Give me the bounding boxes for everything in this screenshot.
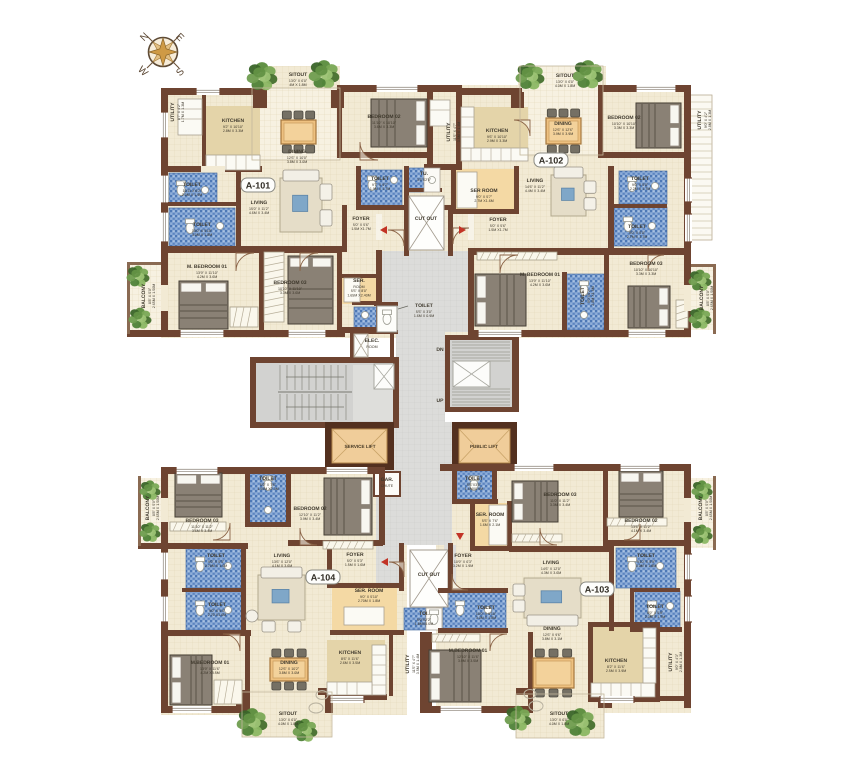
svg-text:11'10" X 10'10": 11'10" X 10'10" xyxy=(372,121,397,125)
svg-text:10'0" X 5'10": 10'0" X 5'10" xyxy=(476,612,497,616)
svg-text:UTILITY: UTILITY xyxy=(697,110,703,130)
svg-text:2.8M X 1.3M: 2.8M X 1.3M xyxy=(679,652,683,672)
svg-text:DINING: DINING xyxy=(280,660,298,666)
svg-text:3.5M X 1.4M: 3.5M X 1.4M xyxy=(416,654,420,674)
svg-text:SER.: SER. xyxy=(353,278,365,284)
svg-text:9'6" X 10'10": 9'6" X 10'10" xyxy=(487,135,508,139)
svg-text:1.5M X1.7M: 1.5M X1.7M xyxy=(351,227,370,231)
svg-text:13'6" X 11'2": 13'6" X 11'2" xyxy=(631,525,652,529)
svg-text:8'8" X 5'0": 8'8" X 5'0" xyxy=(148,287,152,304)
svg-text:9'0" X 5'7": 9'0" X 5'7" xyxy=(476,195,493,199)
svg-text:12'6" X 9'6": 12'6" X 9'6" xyxy=(543,633,562,637)
svg-text:4.1M X 3.4M: 4.1M X 3.4M xyxy=(631,529,651,533)
svg-text:1.9M X 1.7M: 1.9M X 1.7M xyxy=(370,187,390,191)
svg-text:M. BEDROOM 01: M. BEDROOM 01 xyxy=(187,264,227,270)
svg-text:TOILET: TOILET xyxy=(631,176,649,182)
svg-text:4.4M X 3.4M: 4.4M X 3.4M xyxy=(525,189,545,193)
svg-text:2.6M X 3.5M: 2.6M X 3.5M xyxy=(340,661,360,665)
svg-text:12'6" X 12'6": 12'6" X 12'6" xyxy=(553,128,574,132)
svg-text:BEDROOM 03: BEDROOM 03 xyxy=(543,492,576,498)
svg-text:8'8" X 5'0": 8'8" X 5'0" xyxy=(152,499,156,516)
svg-text:SER. ROOM: SER. ROOM xyxy=(476,512,505,518)
svg-text:13'9" X 11'10": 13'9" X 11'10" xyxy=(529,279,552,283)
svg-text:9'10" X 5'9": 9'10" X 5'9" xyxy=(637,560,656,564)
svg-text:1.65M X2.40M: 1.65M X2.40M xyxy=(347,294,370,298)
svg-text:1.7M X 1.3M: 1.7M X 1.3M xyxy=(181,102,185,122)
svg-text:9'0" X 5'6": 9'0" X 5'6" xyxy=(209,609,226,613)
svg-text:11'0" X 11'2": 11'0" X 11'2" xyxy=(550,499,570,503)
svg-text:2.5M X 3.9M: 2.5M X 3.9M xyxy=(606,669,626,673)
svg-text:KITCHEN: KITCHEN xyxy=(605,658,628,664)
svg-text:8'2" X 11'6": 8'2" X 11'6" xyxy=(607,665,626,669)
svg-text:TOILET: TOILET xyxy=(193,222,211,228)
svg-text:9'0" X 5'0": 9'0" X 5'0" xyxy=(632,183,649,187)
svg-text:TOILET: TOILET xyxy=(207,553,225,559)
svg-text:3.3M X 3.3M: 3.3M X 3.3M xyxy=(614,126,634,130)
svg-text:3.2M X 1.9M: 3.2M X 1.9M xyxy=(453,564,473,568)
svg-text:1.55M X2.3M: 1.55M X2.3M xyxy=(257,487,278,491)
svg-text:KITCHEN: KITCHEN xyxy=(339,650,362,656)
svg-text:3'3"X2'0": 3'3"X2'0" xyxy=(417,178,432,182)
svg-text:4.0M X 1.8M: 4.0M X 1.8M xyxy=(549,722,569,726)
svg-text:9'0"X5'2": 9'0"X5'2" xyxy=(587,288,591,303)
svg-text:TOILET: TOILET xyxy=(628,224,646,230)
svg-text:BEDROOM 03: BEDROOM 03 xyxy=(273,280,306,286)
svg-text:4.2M X3.5M: 4.2M X3.5M xyxy=(200,671,219,675)
svg-text:M.BEDROOM 01: M.BEDROOM 01 xyxy=(449,648,488,654)
svg-text:12'6" X 10'0": 12'6" X 10'0" xyxy=(287,156,308,160)
svg-text:2.8M X 1.3M: 2.8M X 1.3M xyxy=(708,110,712,130)
svg-text:3.3M X 3.4M: 3.3M X 3.4M xyxy=(550,503,570,507)
svg-text:SITOUT: SITOUT xyxy=(289,72,307,78)
svg-text:SITOUT: SITOUT xyxy=(279,711,297,717)
svg-text:ELEC.: ELEC. xyxy=(365,338,380,344)
svg-text:UP: UP xyxy=(437,398,445,404)
svg-text:SER ROOM: SER ROOM xyxy=(470,188,497,194)
svg-text:5'5" X 7'6": 5'5" X 7'6" xyxy=(482,519,499,523)
svg-text:10'9" X 6'3": 10'9" X 6'3" xyxy=(454,560,473,564)
svg-text:UTILITY: UTILITY xyxy=(446,122,452,142)
svg-text:DINING: DINING xyxy=(554,121,572,127)
svg-text:8'8" X 5'0": 8'8" X 5'0" xyxy=(706,289,710,306)
svg-text:5'0" X 5'6": 5'0" X 5'6" xyxy=(353,223,370,227)
svg-text:9'7" X 9'7": 9'7" X 9'7" xyxy=(372,183,389,187)
svg-text:1.5M X 1.6M: 1.5M X 1.6M xyxy=(345,563,365,567)
svg-text:4.0M X 1.8M: 4.0M X 1.8M xyxy=(278,722,298,726)
svg-text:3.0M X 1.8M: 3.0M X 1.8M xyxy=(636,564,656,568)
svg-text:5'0" X 5'6": 5'0" X 5'6" xyxy=(490,224,507,228)
svg-text:13'0" X 6'0": 13'0" X 6'0" xyxy=(556,80,575,84)
svg-text:LIVING: LIVING xyxy=(251,200,268,206)
svg-text:13'9" X 11'6": 13'9" X 11'6" xyxy=(200,667,221,671)
svg-text:2.7M X1.6M: 2.7M X1.6M xyxy=(474,199,493,203)
svg-text:GAR.: GAR. xyxy=(381,477,394,483)
svg-text:TOILET: TOILET xyxy=(477,605,495,611)
svg-text:2.65M X 1.50M: 2.65M X 1.50M xyxy=(710,286,714,310)
svg-text:A-102: A-102 xyxy=(539,156,564,166)
svg-text:BALCONY: BALCONY xyxy=(698,495,704,520)
svg-text:1.5M X1.7M: 1.5M X1.7M xyxy=(488,228,507,232)
svg-text:BEDROOM 02: BEDROOM 02 xyxy=(607,115,640,121)
svg-text:8'8" X 5'0": 8'8" X 5'0" xyxy=(705,499,709,516)
svg-text:3.8M X 3.0M: 3.8M X 3.0M xyxy=(279,671,299,675)
svg-text:4.2M X 3.6M: 4.2M X 3.6M xyxy=(530,283,550,287)
svg-text:FOYER: FOYER xyxy=(352,216,370,222)
svg-text:2.9M X 3.3M: 2.9M X 3.3M xyxy=(487,139,507,143)
svg-text:13'0" X 6'0": 13'0" X 6'0" xyxy=(550,718,569,722)
svg-text:5'5" X 3'0": 5'5" X 3'0" xyxy=(416,310,433,314)
svg-text:KITCHEN: KITCHEN xyxy=(222,118,245,124)
svg-text:M.BEDROOM 01: M.BEDROOM 01 xyxy=(191,660,230,666)
svg-text:8'7" X 4'2": 8'7" X 4'2" xyxy=(177,103,181,120)
svg-text:2.7M X 1.7M: 2.7M X 1.7M xyxy=(627,235,647,239)
svg-text:TOILET: TOILET xyxy=(580,287,586,305)
svg-text:14'6" X 11'2": 14'6" X 11'2" xyxy=(525,185,546,189)
svg-text:TOILET: TOILET xyxy=(208,602,226,608)
svg-text:3.9M X 3.5M: 3.9M X 3.5M xyxy=(458,659,478,663)
svg-text:UTILITY: UTILITY xyxy=(668,652,674,672)
svg-text:4.3M X 3.6M: 4.3M X 3.6M xyxy=(541,571,561,575)
svg-text:10'10" X 10'10": 10'10" X 10'10" xyxy=(634,268,659,272)
svg-text:9'0" X 4'2": 9'0" X 4'2" xyxy=(704,111,708,128)
svg-text:DINING: DINING xyxy=(543,626,561,632)
svg-text:BALCONY: BALCONY xyxy=(141,283,147,308)
svg-text:A-104: A-104 xyxy=(311,573,336,583)
svg-text:FOYER: FOYER xyxy=(489,217,507,223)
svg-text:2.65M X 1.50M: 2.65M X 1.50M xyxy=(709,496,713,520)
svg-text:M. BEDROOM 01: M. BEDROOM 01 xyxy=(520,272,560,278)
svg-text:SITOUT: SITOUT xyxy=(556,73,574,79)
svg-text:2.65M X 1.50M: 2.65M X 1.50M xyxy=(156,496,160,520)
svg-text:2.70M X 1.8M: 2.70M X 1.8M xyxy=(358,599,380,603)
svg-text:3.6M X 3.3M: 3.6M X 3.3M xyxy=(374,125,394,129)
svg-text:FOYER: FOYER xyxy=(346,552,364,558)
svg-text:BALCONY: BALCONY xyxy=(145,495,151,520)
svg-text:2.8M X 3.3M: 2.8M X 3.3M xyxy=(223,129,243,133)
svg-text:3.3M X 3.6M: 3.3M X 3.6M xyxy=(280,291,300,295)
svg-text:DN: DN xyxy=(436,347,444,353)
svg-text:5'5"X3'0": 5'5"X3'0" xyxy=(467,483,482,487)
svg-text:BALCONY: BALCONY xyxy=(699,285,705,310)
svg-text:11'5" X 4'7": 11'5" X 4'7" xyxy=(412,654,416,673)
svg-text:13'0" X 6'0": 13'0" X 6'0" xyxy=(289,79,308,83)
svg-text:5'0" X 7'6": 5'0" X 7'6" xyxy=(260,483,277,487)
svg-text:2.8M X1.6M: 2.8M X1.6M xyxy=(591,286,595,305)
svg-text:KITCHEN: KITCHEN xyxy=(486,128,509,134)
svg-text:3.6M X 3.4M: 3.6M X 3.4M xyxy=(192,529,212,533)
svg-text:FOYER: FOYER xyxy=(454,553,472,559)
svg-text:1.6M X 0.9M: 1.6M X 0.9M xyxy=(414,314,434,318)
svg-text:CHUTE: CHUTE xyxy=(381,484,394,488)
svg-text:A-103: A-103 xyxy=(585,585,610,595)
svg-text:2.70M X 1.6M: 2.70M X 1.6M xyxy=(205,564,227,568)
svg-text:3.0M X 1.8M: 3.0M X 1.8M xyxy=(476,616,496,620)
svg-text:A-101: A-101 xyxy=(246,181,271,191)
svg-text:9'0" X 4'3": 9'0" X 4'3" xyxy=(675,653,679,670)
svg-text:LIVING: LIVING xyxy=(274,553,291,559)
svg-text:3.0M X 1.8M: 3.0M X 1.8M xyxy=(192,233,212,237)
svg-text:BEDROOM 03: BEDROOM 03 xyxy=(629,261,662,267)
svg-text:11'10" X 11'2": 11'10" X 11'2" xyxy=(191,525,213,529)
svg-text:10'10" X 10'10": 10'10" X 10'10" xyxy=(612,122,637,126)
svg-text:3.5M X 1.4M: 3.5M X 1.4M xyxy=(457,122,461,142)
svg-text:LIVING: LIVING xyxy=(527,178,544,184)
svg-text:5'9"X2'2": 5'9"X2'2" xyxy=(417,618,432,622)
svg-text:BEDROOM 02: BEDROOM 02 xyxy=(367,114,400,120)
svg-text:DINING: DINING xyxy=(288,149,306,155)
svg-text:3.3M X 3.3M: 3.3M X 3.3M xyxy=(636,272,656,276)
svg-text:TOILET: TOILET xyxy=(646,604,664,610)
svg-text:15'0" X 11'2": 15'0" X 11'2" xyxy=(249,207,270,211)
svg-text:2.70 X1.6M: 2.70 X1.6M xyxy=(208,613,226,617)
svg-text:TOILET: TOILET xyxy=(183,182,201,188)
svg-text:TU.: TU. xyxy=(420,171,429,177)
svg-text:9'2" X 10'10": 9'2" X 10'10" xyxy=(223,125,244,129)
svg-text:PUBLIC LIFT: PUBLIC LIFT xyxy=(470,444,498,449)
svg-text:BEDROOM 02: BEDROOM 02 xyxy=(293,506,326,512)
svg-text:9'0" X 5'0": 9'0" X 5'0" xyxy=(629,231,646,235)
svg-text:UTILITY: UTILITY xyxy=(405,654,411,674)
svg-text:10'10" X 11'10": 10'10" X 11'10" xyxy=(278,287,303,291)
svg-text:CUT OUT: CUT OUT xyxy=(415,216,437,222)
svg-text:SER. ROOM: SER. ROOM xyxy=(355,588,384,594)
svg-text:8'6" X 11'6": 8'6" X 11'6" xyxy=(341,657,360,661)
svg-text:ROOM: ROOM xyxy=(353,285,364,289)
svg-text:14'6" X 12'0": 14'6" X 12'0" xyxy=(541,567,562,571)
svg-text:9'0" X 5'3": 9'0" X 5'3" xyxy=(208,560,225,564)
svg-text:UTILITY: UTILITY xyxy=(170,102,176,122)
svg-text:1.8MX0.6M: 1.8MX0.6M xyxy=(415,622,433,626)
svg-text:10'11 X 6'2": 10'11 X 6'2" xyxy=(183,189,202,193)
svg-text:BEDROOM 02: BEDROOM 02 xyxy=(624,518,657,524)
svg-text:6'9" X 5'9": 6'9" X 5'9" xyxy=(647,611,664,615)
svg-text:3.9M X 3.4M: 3.9M X 3.4M xyxy=(300,517,320,521)
svg-text:12'10" X 11'2": 12'10" X 11'2" xyxy=(299,513,322,517)
svg-text:2.65M X 1.50M: 2.65M X 1.50M xyxy=(152,284,156,308)
svg-text:2.0M X 1.7M: 2.0M X 1.7M xyxy=(645,615,665,619)
svg-text:4.1M X 3.6M: 4.1M X 3.6M xyxy=(272,564,292,568)
svg-text:TOILET: TOILET xyxy=(259,476,277,482)
svg-text:TOILET: TOILET xyxy=(465,476,483,482)
svg-text:2.0M X 1.9M: 2.0M X 1.9M xyxy=(182,193,202,197)
svg-text:TOILET: TOILET xyxy=(371,176,389,182)
svg-text:1.6M X 2.1M: 1.6M X 2.1M xyxy=(480,523,500,527)
svg-text:4.0M X 1.8M: 4.0M X 1.8M xyxy=(555,84,575,88)
svg-text:ROOM: ROOM xyxy=(366,345,377,349)
svg-text:13'6" X 12'0": 13'6" X 12'0" xyxy=(272,560,293,564)
svg-text:13'0" X 6'0": 13'0" X 6'0" xyxy=(279,718,298,722)
svg-text:3.8M X 3.1M: 3.8M X 3.1M xyxy=(542,637,562,641)
svg-text:13'9" X 11'10": 13'9" X 11'10" xyxy=(196,271,219,275)
svg-text:4M X 1.8M: 4M X 1.8M xyxy=(289,83,306,87)
svg-text:12'10" X 11'6": 12'10" X 11'6" xyxy=(457,655,480,659)
svg-text:CUT OUT: CUT OUT xyxy=(418,572,440,578)
svg-text:TOILET: TOILET xyxy=(637,553,655,559)
svg-text:4.6M X 3.4M: 4.6M X 3.4M xyxy=(249,211,269,215)
svg-text:9'0" X 5'10": 9'0" X 5'10" xyxy=(360,595,379,599)
svg-text:4.2M X 3.6M: 4.2M X 3.6M xyxy=(197,275,217,279)
svg-text:2.2M X 1.7M: 2.2M X 1.7M xyxy=(630,187,650,191)
svg-text:LIVING: LIVING xyxy=(543,560,560,566)
svg-text:3.9M X 3.9M: 3.9M X 3.9M xyxy=(553,132,573,136)
svg-text:TOI.: TOI. xyxy=(419,611,429,617)
svg-text:3.8M X 3.0M: 3.8M X 3.0M xyxy=(287,160,307,164)
svg-text:12'6" X 10'2": 12'6" X 10'2" xyxy=(279,667,300,671)
svg-text:1.6MX0.9M: 1.6MX0.9M xyxy=(465,487,483,491)
svg-text:5'5" X 8'0": 5'5" X 8'0" xyxy=(351,289,368,293)
svg-text:10'0" X 5'10": 10'0" X 5'10" xyxy=(192,229,213,233)
svg-text:BEDROOM 03: BEDROOM 03 xyxy=(185,518,218,524)
svg-text:11'5" X 4'7": 11'5" X 4'7" xyxy=(453,122,457,141)
svg-text:SITOUT: SITOUT xyxy=(550,711,568,717)
svg-text:SERVICE LIFT: SERVICE LIFT xyxy=(344,444,375,449)
svg-text:TOILET: TOILET xyxy=(415,303,433,309)
svg-text:5'0" X 5'3": 5'0" X 5'3" xyxy=(347,559,364,563)
